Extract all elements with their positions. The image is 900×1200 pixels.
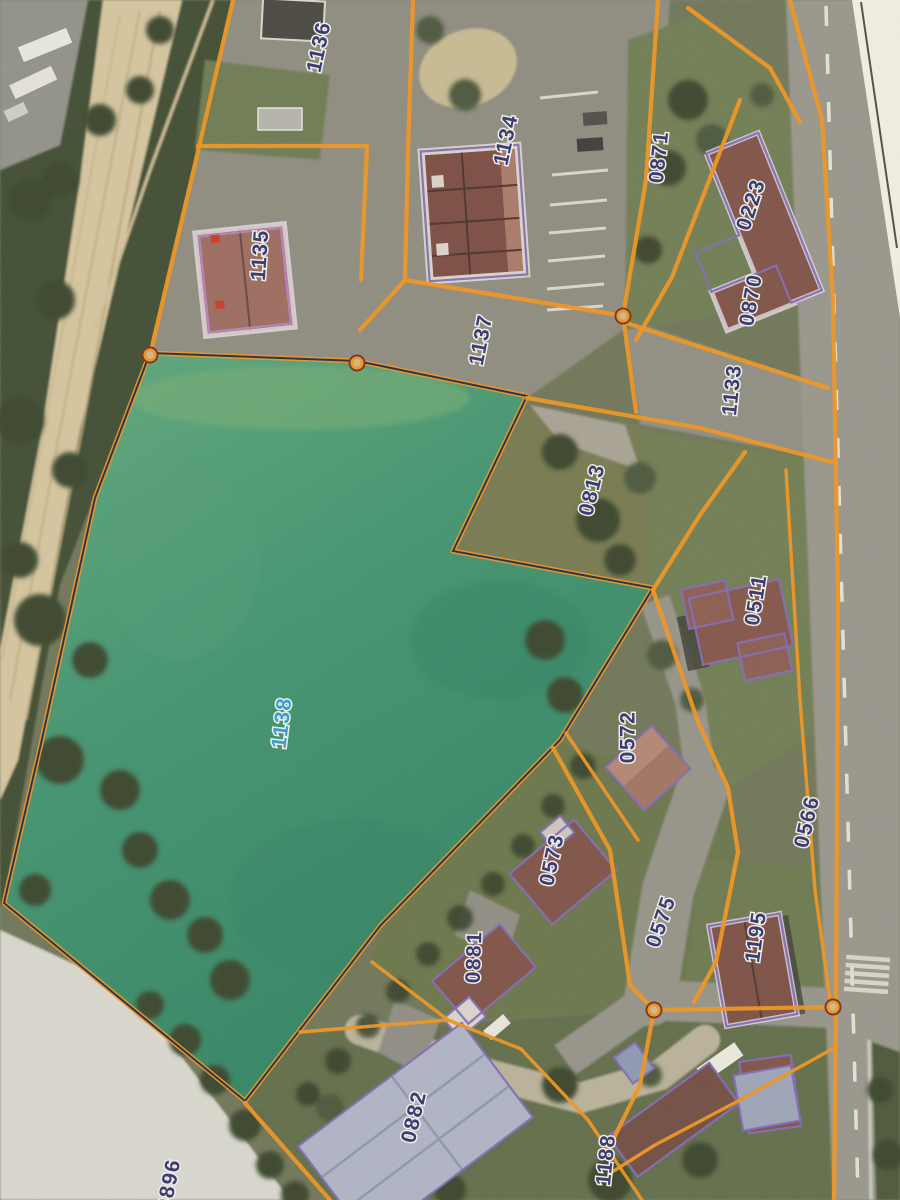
warm-tint-overlay [0, 0, 900, 1200]
aerial-cadastral-map: 1136113408710223113508701137113308130511… [0, 0, 900, 1200]
cadastral-map-photo: 1136113408710223113508701137113308130511… [0, 0, 900, 1200]
